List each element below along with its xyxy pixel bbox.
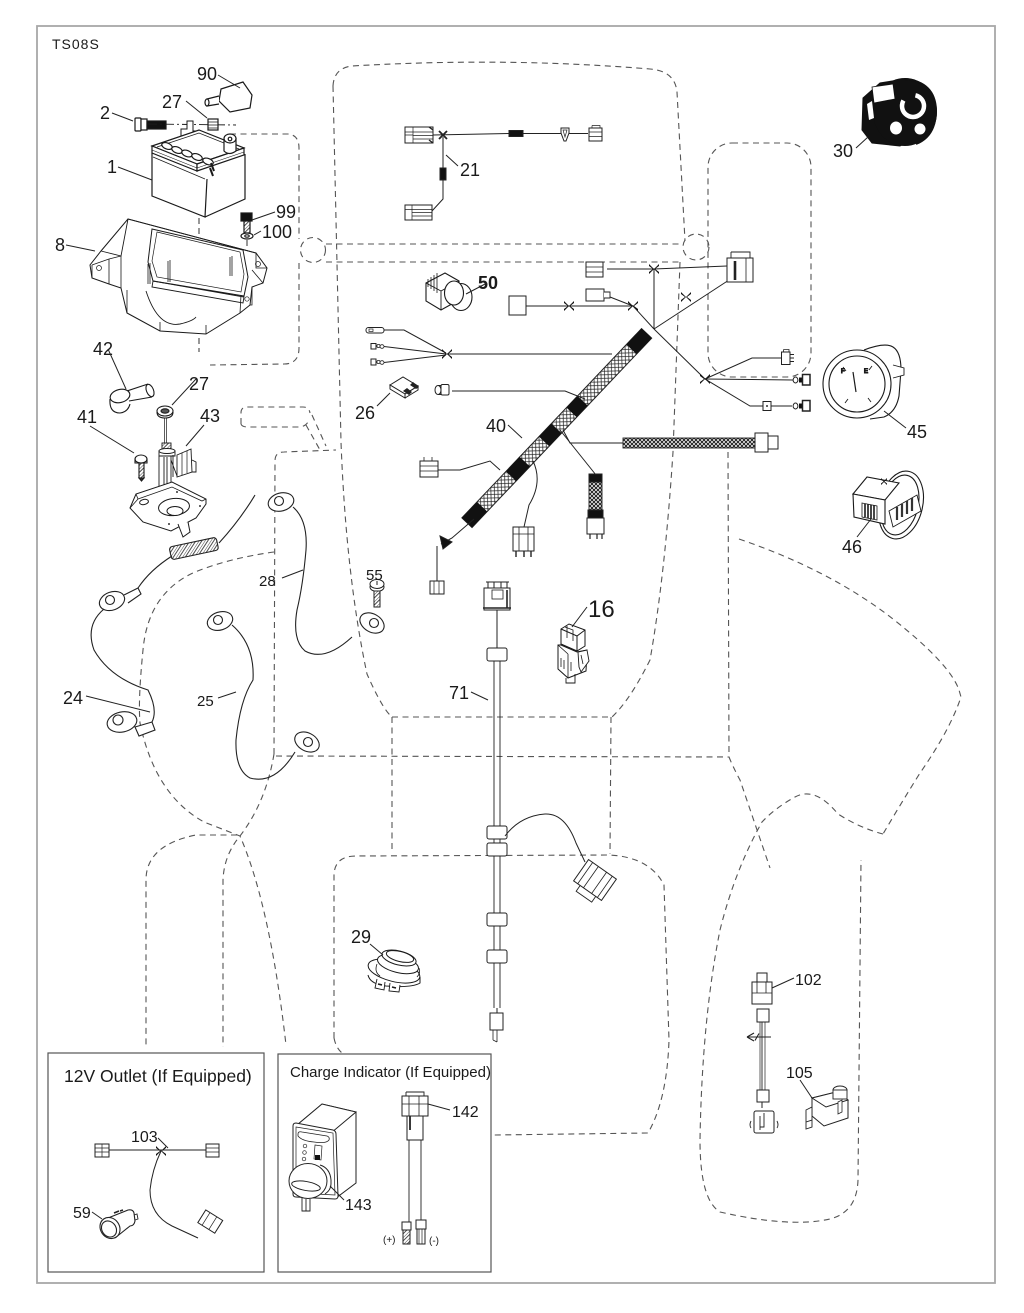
svg-text:TS08S: TS08S xyxy=(52,36,100,52)
svg-text:Charge Indicator (If Equipped): Charge Indicator (If Equipped) xyxy=(290,1064,491,1081)
svg-text:29: 29 xyxy=(351,927,371,947)
svg-text:26: 26 xyxy=(355,403,375,423)
svg-text:27: 27 xyxy=(162,92,182,112)
svg-text:21: 21 xyxy=(460,160,480,180)
svg-text:24: 24 xyxy=(63,688,83,708)
svg-text:71: 71 xyxy=(449,683,469,703)
svg-text:102: 102 xyxy=(795,972,822,989)
svg-text:143: 143 xyxy=(345,1197,372,1214)
svg-text:100: 100 xyxy=(262,222,292,242)
svg-text:90: 90 xyxy=(197,64,217,84)
svg-text:42: 42 xyxy=(93,339,113,359)
svg-text:F: F xyxy=(841,369,845,375)
svg-text:30: 30 xyxy=(833,141,853,161)
svg-text:103: 103 xyxy=(131,1129,158,1146)
svg-text:45: 45 xyxy=(907,422,927,442)
svg-text:50: 50 xyxy=(478,273,498,293)
svg-text:(+): (+) xyxy=(383,1235,396,1246)
svg-text:46: 46 xyxy=(842,537,862,557)
svg-text:25: 25 xyxy=(197,693,214,710)
svg-text:12V Outlet (If Equipped): 12V Outlet (If Equipped) xyxy=(64,1066,252,1086)
svg-text:28: 28 xyxy=(259,573,276,590)
svg-text:41: 41 xyxy=(77,407,97,427)
svg-text:1: 1 xyxy=(107,157,117,177)
svg-text:2: 2 xyxy=(100,103,110,123)
svg-text:8: 8 xyxy=(55,235,65,255)
svg-text:55: 55 xyxy=(366,567,383,584)
svg-text:16: 16 xyxy=(588,596,615,623)
svg-text:142: 142 xyxy=(452,1104,479,1121)
svg-text:E: E xyxy=(864,369,868,375)
svg-text:105: 105 xyxy=(786,1065,813,1082)
svg-text:(-): (-) xyxy=(429,1236,439,1247)
svg-text:43: 43 xyxy=(200,406,220,426)
svg-text:40: 40 xyxy=(486,416,506,436)
svg-text:99: 99 xyxy=(276,202,296,222)
svg-text:59: 59 xyxy=(73,1205,91,1222)
